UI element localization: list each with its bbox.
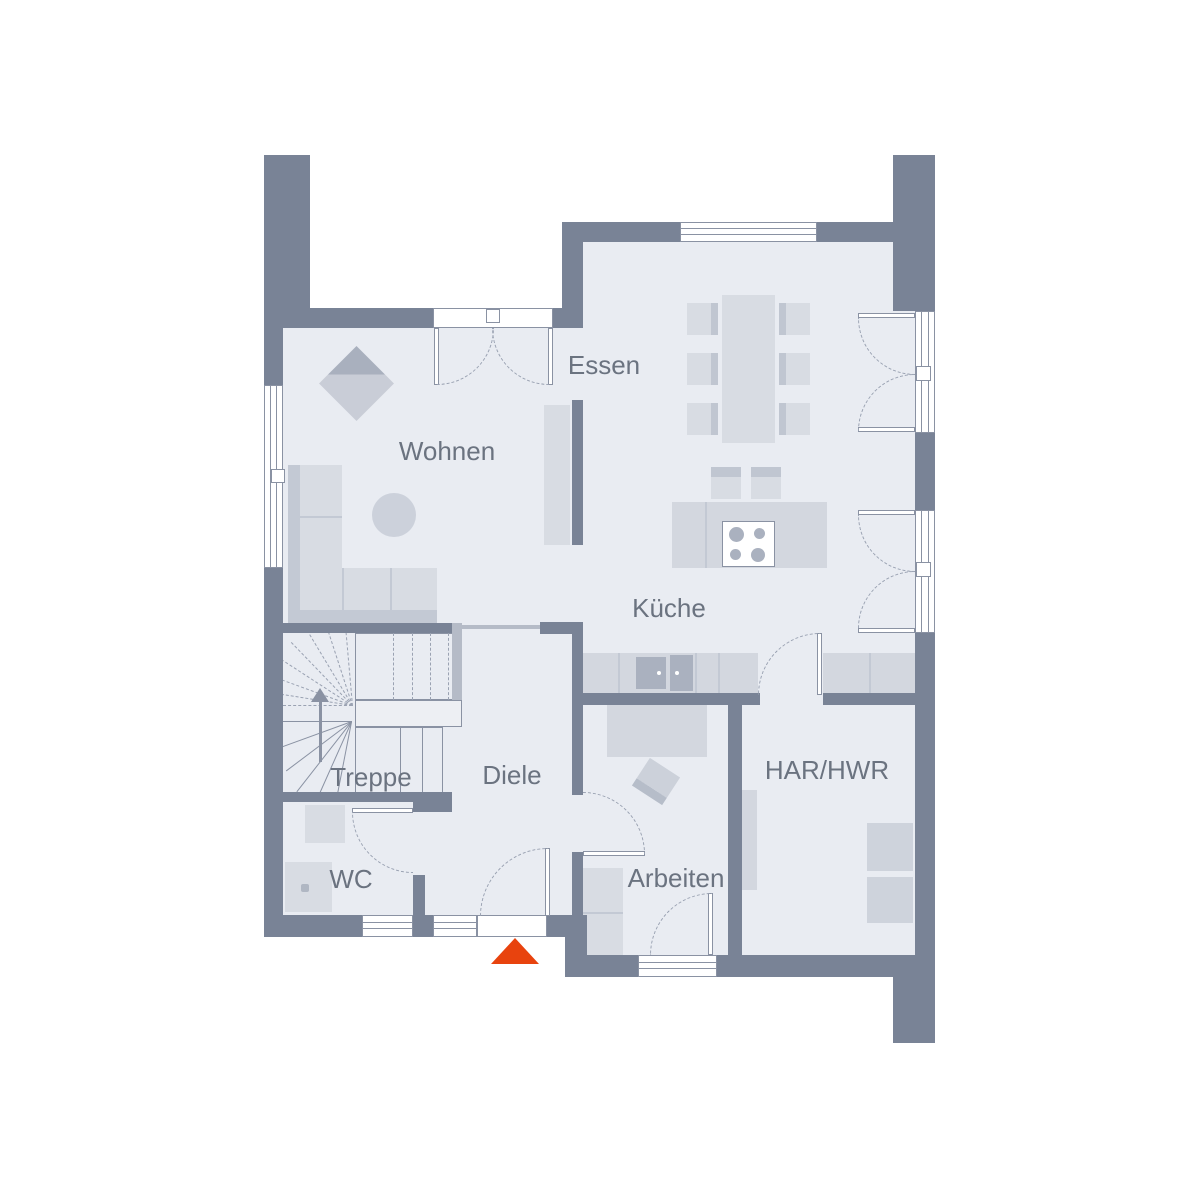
room-label-treppe: Treppe <box>330 764 411 790</box>
coffee-table <box>372 493 416 537</box>
dining-table <box>722 295 775 443</box>
washing-machine <box>867 823 913 871</box>
door-leaf <box>858 628 915 633</box>
window-essen-north <box>680 222 817 242</box>
room-label-wohnen: Wohnen <box>399 438 495 464</box>
wall-west-lower <box>264 568 283 937</box>
sofa-back-bottom <box>300 610 437 623</box>
chair <box>687 303 718 335</box>
wall-south-west <box>264 915 362 937</box>
wall-light-stair-edge <box>452 623 462 700</box>
wall-light-lintel <box>462 625 540 629</box>
sideboard <box>544 405 570 545</box>
room-label-essen: Essen <box>568 352 640 378</box>
wall-har-north <box>823 693 935 705</box>
room-label-arbeiten: Arbeiten <box>628 865 725 891</box>
wall-bay-top-right <box>817 222 893 242</box>
wall-har-west <box>728 693 742 957</box>
sofa-seats-bottom <box>300 568 437 610</box>
french-door-north-handle <box>486 309 500 323</box>
french-door-east2-handle <box>916 562 931 577</box>
oven <box>670 655 693 691</box>
window-west-handle <box>271 469 285 483</box>
burner <box>754 528 765 539</box>
cooktop <box>722 521 775 567</box>
burner <box>729 527 744 542</box>
wall-south-entry-right <box>547 915 567 937</box>
stair-landing <box>355 700 462 727</box>
wall-south-mid <box>413 915 433 937</box>
wall-north-left <box>290 308 437 328</box>
chair <box>779 303 810 335</box>
har-cabinet <box>742 790 757 890</box>
chair <box>779 403 810 435</box>
wall-wc-door-jamb <box>413 792 452 812</box>
stair-tread <box>412 633 413 700</box>
burner <box>751 548 765 562</box>
appliance-dot <box>657 671 661 675</box>
bar-stool <box>751 467 781 499</box>
stair-arrow-head <box>311 688 329 702</box>
counter-divider <box>718 653 720 693</box>
wall-stair-north <box>283 623 462 633</box>
entrance-door-frame <box>477 915 547 937</box>
wc-sink <box>305 805 345 843</box>
entrance-marker-icon <box>491 938 539 964</box>
desk-divider <box>583 912 623 914</box>
window-arbeiten-south <box>638 955 717 977</box>
stair-tread <box>422 727 423 793</box>
wall-diele-kueche <box>572 622 583 795</box>
window-wc-south <box>362 915 413 937</box>
wall-south-lower-b <box>717 955 893 977</box>
window-entry-sidelight <box>433 915 477 937</box>
appliance-dot <box>675 671 679 675</box>
stair-tread <box>448 633 449 700</box>
stair-tread <box>283 721 352 722</box>
wall-east-mid <box>915 433 935 510</box>
wall-partial-sideboard <box>572 400 583 545</box>
french-door-east1-handle <box>916 366 931 381</box>
stair-winder <box>283 705 352 706</box>
counter-divider <box>695 653 697 693</box>
wall-west-upper <box>264 328 283 385</box>
wall-bay-top-left <box>562 222 680 242</box>
stair-tread <box>393 633 394 700</box>
stair-tread <box>430 633 431 700</box>
sofa-cushion-line <box>300 516 342 518</box>
wall-south-lower-a <box>587 955 638 977</box>
wall-ne-stub <box>893 155 935 311</box>
wall-wc-east <box>413 875 425 917</box>
burner <box>730 549 741 560</box>
counter-divider <box>869 653 871 693</box>
sofa-cushion-line <box>342 568 344 610</box>
bar-stool <box>711 467 741 499</box>
room-label-wc: WC <box>329 866 372 892</box>
chair <box>687 353 718 385</box>
stair-upper-flight <box>355 633 462 700</box>
wall-south-connector <box>565 915 587 977</box>
dryer <box>867 877 913 923</box>
wall-nw-stub <box>264 155 310 328</box>
chair <box>687 403 718 435</box>
room-label-diele: Diele <box>482 762 541 788</box>
wc-toilet-dot <box>301 884 309 892</box>
floor-plan: Essen Wohnen Küche Treppe Diele WC Arbei… <box>0 0 1200 1200</box>
chair <box>779 353 810 385</box>
stair-direction-arrow <box>319 701 322 762</box>
dishwasher <box>636 657 666 689</box>
room-label-har-hwr: HAR/HWR <box>765 757 889 783</box>
wall-se-stub <box>893 955 935 1043</box>
sofa-cushion-line <box>390 568 392 610</box>
island-divider <box>705 502 707 568</box>
room-label-kueche: Küche <box>632 595 706 621</box>
sofa-back-left <box>288 465 300 623</box>
shelf <box>607 705 707 757</box>
counter-divider <box>618 653 620 693</box>
wall-east-lower <box>915 633 935 955</box>
